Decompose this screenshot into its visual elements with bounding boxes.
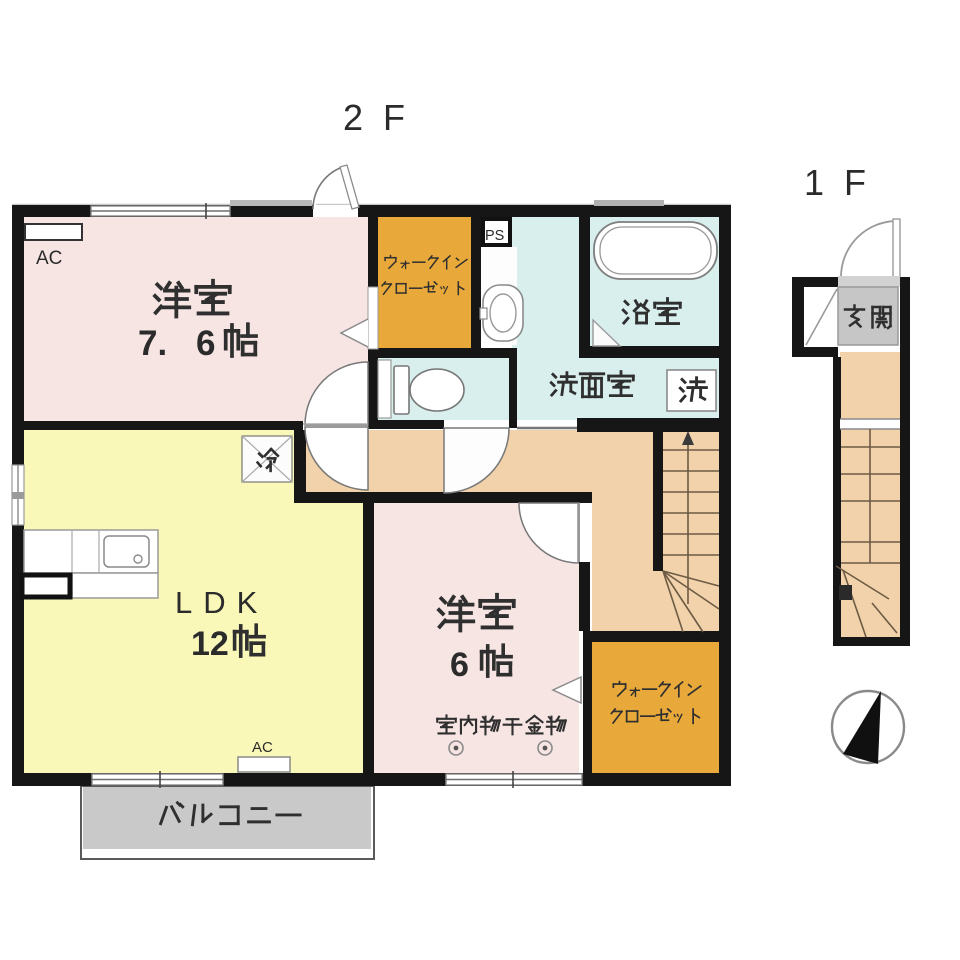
svg-text:6: 6 xyxy=(450,646,469,684)
svg-text:1 F: 1 F xyxy=(804,162,871,203)
svg-text:7.: 7. xyxy=(138,324,167,363)
svg-text:AC: AC xyxy=(36,248,62,269)
svg-text:6: 6 xyxy=(196,324,215,363)
svg-text:LDK: LDK xyxy=(175,585,268,620)
svg-text:PS: PS xyxy=(485,228,504,244)
svg-text:AC: AC xyxy=(252,739,273,756)
svg-text:2 F: 2 F xyxy=(343,97,410,138)
svg-text:12: 12 xyxy=(191,625,229,663)
